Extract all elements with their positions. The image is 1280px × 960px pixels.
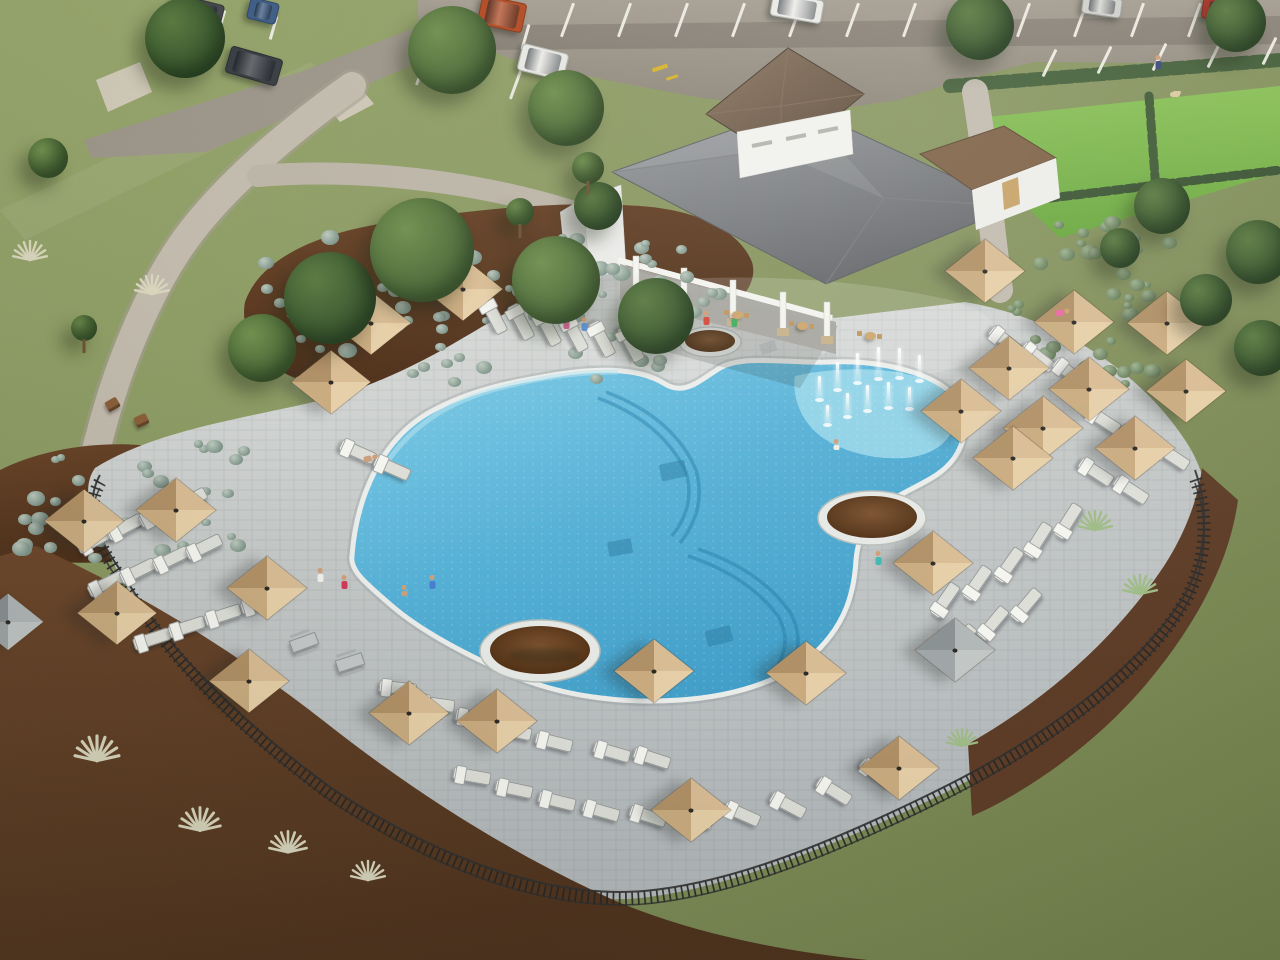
shrub: [1077, 228, 1089, 237]
palmetto-plant: [266, 828, 310, 857]
lounge-chair: [976, 604, 1010, 641]
shrub: [261, 284, 274, 294]
lounge-chair: [203, 603, 243, 627]
shrub: [229, 454, 243, 465]
shrub: [1093, 348, 1108, 360]
parking-stripe: [902, 3, 917, 38]
shrub: [639, 254, 651, 264]
tree: [1100, 228, 1140, 268]
shrub: [680, 271, 695, 283]
lounge-chair: [632, 746, 672, 770]
person-body: [833, 445, 839, 450]
shrub: [321, 230, 339, 244]
shrub: [697, 297, 710, 307]
lounge-chair: [1077, 456, 1116, 488]
shrub: [435, 343, 446, 352]
tree: [618, 278, 694, 354]
lounge-chair: [993, 546, 1025, 585]
palmetto-plant: [1075, 508, 1115, 534]
shrub: [1144, 364, 1162, 378]
person-head: [342, 575, 347, 580]
parking-stripe: [845, 3, 860, 38]
fountain-jet: [826, 405, 829, 425]
person-body: [703, 317, 709, 325]
tree-trunk: [519, 224, 522, 238]
patio-umbrella: [921, 379, 1000, 442]
dog: [1170, 92, 1180, 97]
lounge-chair: [961, 564, 993, 603]
patio-table-set: [794, 319, 810, 331]
palmetto-plant: [348, 858, 388, 884]
tree: [528, 70, 604, 146]
person: [875, 551, 882, 566]
shrub: [230, 539, 246, 552]
fountain-jet: [877, 347, 880, 379]
tree: [408, 6, 496, 94]
lounge-chair: [1112, 474, 1151, 506]
palm-shadow: [509, 648, 579, 663]
scene-objects: [0, 0, 1280, 960]
shrub: [1106, 288, 1121, 300]
lounge-chair: [1022, 520, 1053, 559]
shrub: [1130, 362, 1145, 374]
parking-stripe: [1130, 3, 1145, 38]
lounge-chair: [581, 800, 621, 823]
parking-stripe: [1016, 3, 1031, 38]
lounge-chair: [452, 766, 492, 785]
person-head: [402, 585, 407, 590]
person-head: [372, 454, 378, 460]
lounge-chair: [184, 533, 224, 561]
shrub: [606, 263, 620, 274]
car: [1081, 0, 1123, 19]
shrub: [27, 491, 45, 505]
shrub: [258, 257, 274, 269]
patio-umbrella: [457, 689, 536, 752]
person: [833, 439, 840, 450]
shrub: [436, 324, 448, 334]
shrub: [441, 359, 453, 368]
fountain-jet: [898, 348, 901, 378]
shrub: [1046, 341, 1061, 353]
person: [1155, 55, 1162, 70]
tree: [1134, 178, 1190, 234]
shrub: [407, 369, 419, 378]
shrub: [44, 542, 58, 553]
patio-table-set: [862, 329, 878, 341]
shrub: [598, 291, 608, 299]
tree: [946, 0, 1014, 60]
lounge-chair: [814, 775, 853, 806]
fountain-jet: [866, 385, 869, 411]
palmetto-plant: [10, 238, 50, 264]
tree: [574, 182, 622, 230]
lounge-chair: [494, 779, 534, 800]
person: [731, 313, 738, 328]
palmetto-plant: [132, 272, 172, 298]
wooden-chair: [133, 413, 149, 428]
parking-stripe: [731, 3, 746, 38]
tree: [1206, 0, 1266, 52]
person-head: [582, 317, 587, 322]
person-body: [1055, 309, 1064, 317]
tree: [71, 315, 97, 341]
shrub: [706, 288, 718, 298]
deck-table: [335, 652, 366, 673]
shrub: [1123, 302, 1132, 309]
patio-umbrella: [893, 531, 972, 594]
tree: [1234, 320, 1280, 376]
person-head: [318, 568, 323, 573]
shrub: [206, 440, 223, 454]
shrub: [28, 522, 45, 535]
shrub: [1033, 257, 1048, 269]
shrub: [142, 469, 154, 479]
tree-trunk: [587, 181, 590, 195]
shrub: [57, 454, 66, 461]
shrub: [1124, 294, 1134, 302]
palmetto-plant: [1120, 572, 1160, 598]
person: [581, 317, 588, 332]
tree: [228, 314, 296, 382]
lounge-chair: [372, 454, 412, 481]
person-head: [1156, 55, 1161, 60]
tree: [1226, 220, 1280, 284]
patio-umbrella: [651, 778, 730, 841]
car: [224, 45, 284, 87]
shrub: [12, 541, 31, 556]
person: [703, 311, 710, 326]
patio-umbrella: [859, 736, 938, 799]
person-head: [704, 311, 709, 316]
lounge-chair: [1009, 586, 1043, 623]
fountain-jet: [818, 376, 821, 400]
person-body: [875, 557, 881, 565]
table: [797, 322, 808, 330]
shrub: [641, 240, 650, 247]
shrub: [1116, 268, 1131, 280]
shrub: [72, 475, 85, 485]
fountain-jet: [918, 355, 921, 381]
tree: [284, 252, 376, 344]
shrub: [454, 353, 465, 362]
deck-table: [289, 632, 320, 654]
palmetto-plant: [176, 804, 224, 835]
person-body: [1155, 61, 1161, 69]
lounge-chair: [167, 615, 207, 639]
lounge-chair: [768, 790, 808, 819]
palmetto-plant: [944, 726, 980, 749]
wooden-chair: [104, 396, 121, 412]
shrub: [590, 374, 603, 385]
person: [429, 575, 436, 590]
person: [401, 585, 408, 596]
shrub: [315, 345, 325, 353]
shrub: [676, 245, 687, 254]
tree: [512, 236, 600, 324]
person-body: [429, 581, 435, 589]
shrub: [338, 343, 357, 358]
shrub: [1007, 305, 1016, 312]
patio-umbrella: [766, 641, 845, 704]
shrub: [653, 355, 666, 366]
shrub: [1129, 279, 1145, 292]
shrub: [227, 533, 236, 540]
lounge-chair: [537, 790, 577, 812]
tree: [28, 138, 68, 178]
person-head: [430, 575, 435, 580]
patio-umbrella: [614, 639, 693, 702]
parking-stripe: [560, 3, 575, 38]
parking-stripe: [1262, 37, 1278, 65]
tree: [572, 152, 604, 184]
shrub: [433, 312, 446, 322]
fountain-jet: [846, 393, 849, 417]
person-body: [363, 455, 372, 463]
tree-trunk: [83, 339, 86, 353]
parking-stripe: [1097, 46, 1113, 74]
shrub: [1117, 366, 1132, 378]
tree: [1180, 274, 1232, 326]
tree: [506, 198, 534, 226]
aerial-pool-amenity-rendering: [0, 0, 1280, 960]
parking-stripe: [674, 3, 689, 38]
shrub: [476, 361, 492, 374]
shrub: [418, 362, 430, 372]
parking-stripe: [1042, 49, 1058, 77]
parking-stripe: [617, 3, 632, 38]
lounge-chair: [534, 731, 574, 753]
fountain-jet: [887, 382, 890, 408]
lounge-chair: [132, 627, 172, 651]
patio-umbrella: [291, 350, 370, 413]
table: [865, 332, 876, 340]
person-body: [317, 574, 323, 582]
parking-stripe: [1187, 3, 1202, 38]
person-head: [1064, 308, 1070, 314]
person: [341, 575, 348, 590]
person-body: [341, 581, 347, 589]
shrub: [1162, 237, 1177, 249]
fountain-jet: [856, 353, 859, 383]
fountain-jet: [836, 362, 839, 390]
shrub: [194, 440, 203, 448]
person-head: [732, 313, 737, 318]
patio-umbrella: [945, 239, 1024, 302]
shrub: [1059, 248, 1075, 261]
fountain-jet: [908, 387, 911, 409]
lounge-chair: [592, 741, 632, 764]
person-body: [731, 319, 737, 327]
person-body: [401, 591, 407, 596]
shrub: [50, 497, 61, 506]
tree: [145, 0, 225, 78]
shrub: [448, 377, 461, 388]
shrub: [222, 489, 234, 498]
lounge-chair: [338, 438, 378, 465]
person-head: [834, 439, 839, 444]
patio-umbrella: [209, 649, 288, 712]
palmetto-plant: [71, 732, 123, 766]
lounge-chair: [722, 800, 762, 827]
shrub: [1106, 337, 1116, 345]
person: [317, 568, 324, 583]
person-body: [581, 323, 587, 331]
car: [769, 0, 824, 24]
car: [246, 0, 280, 25]
patio-umbrella: [0, 593, 44, 650]
tree: [370, 198, 474, 302]
shrub: [1054, 221, 1064, 229]
person-head: [876, 551, 881, 556]
parking-stripe: [509, 70, 522, 99]
